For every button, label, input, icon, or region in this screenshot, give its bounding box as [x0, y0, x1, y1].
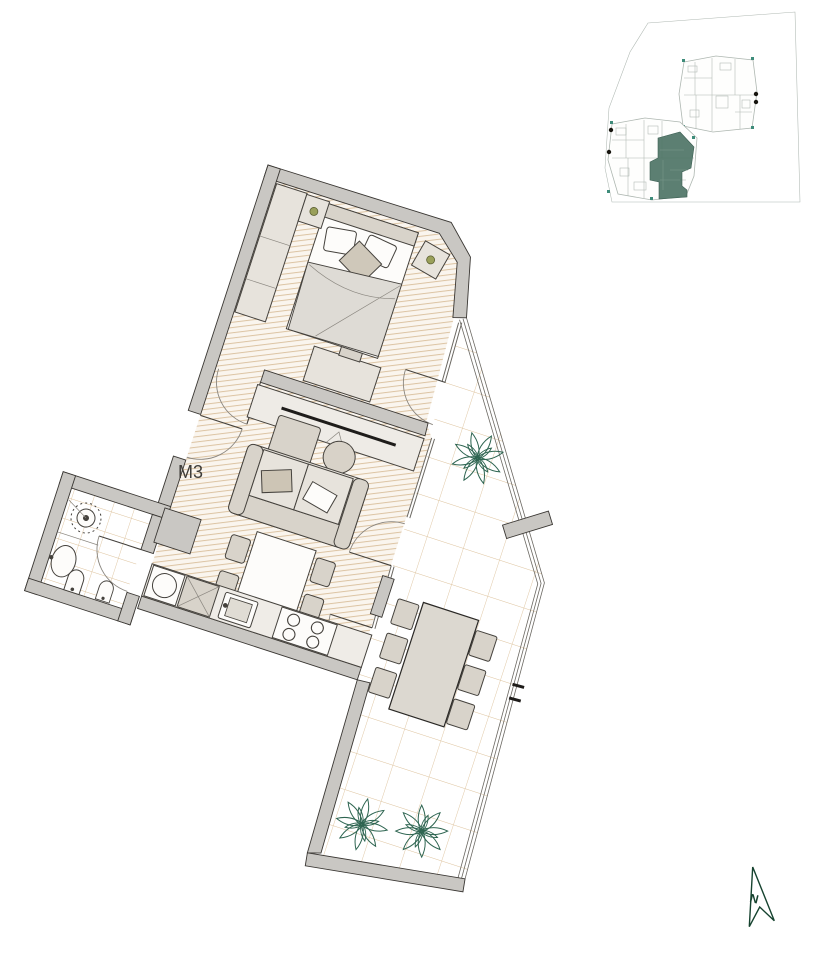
- key-plan-upper-building: [679, 56, 758, 132]
- floor-plan-page: M3 N: [0, 0, 825, 960]
- key-plan: [605, 12, 800, 202]
- apartment-plan: [0, 132, 659, 914]
- unit-label: M3: [178, 462, 203, 482]
- north-arrow: N: [748, 867, 774, 927]
- floor-plan-drawing: M3 N: [0, 0, 825, 960]
- key-plan-lower-building: [607, 118, 697, 200]
